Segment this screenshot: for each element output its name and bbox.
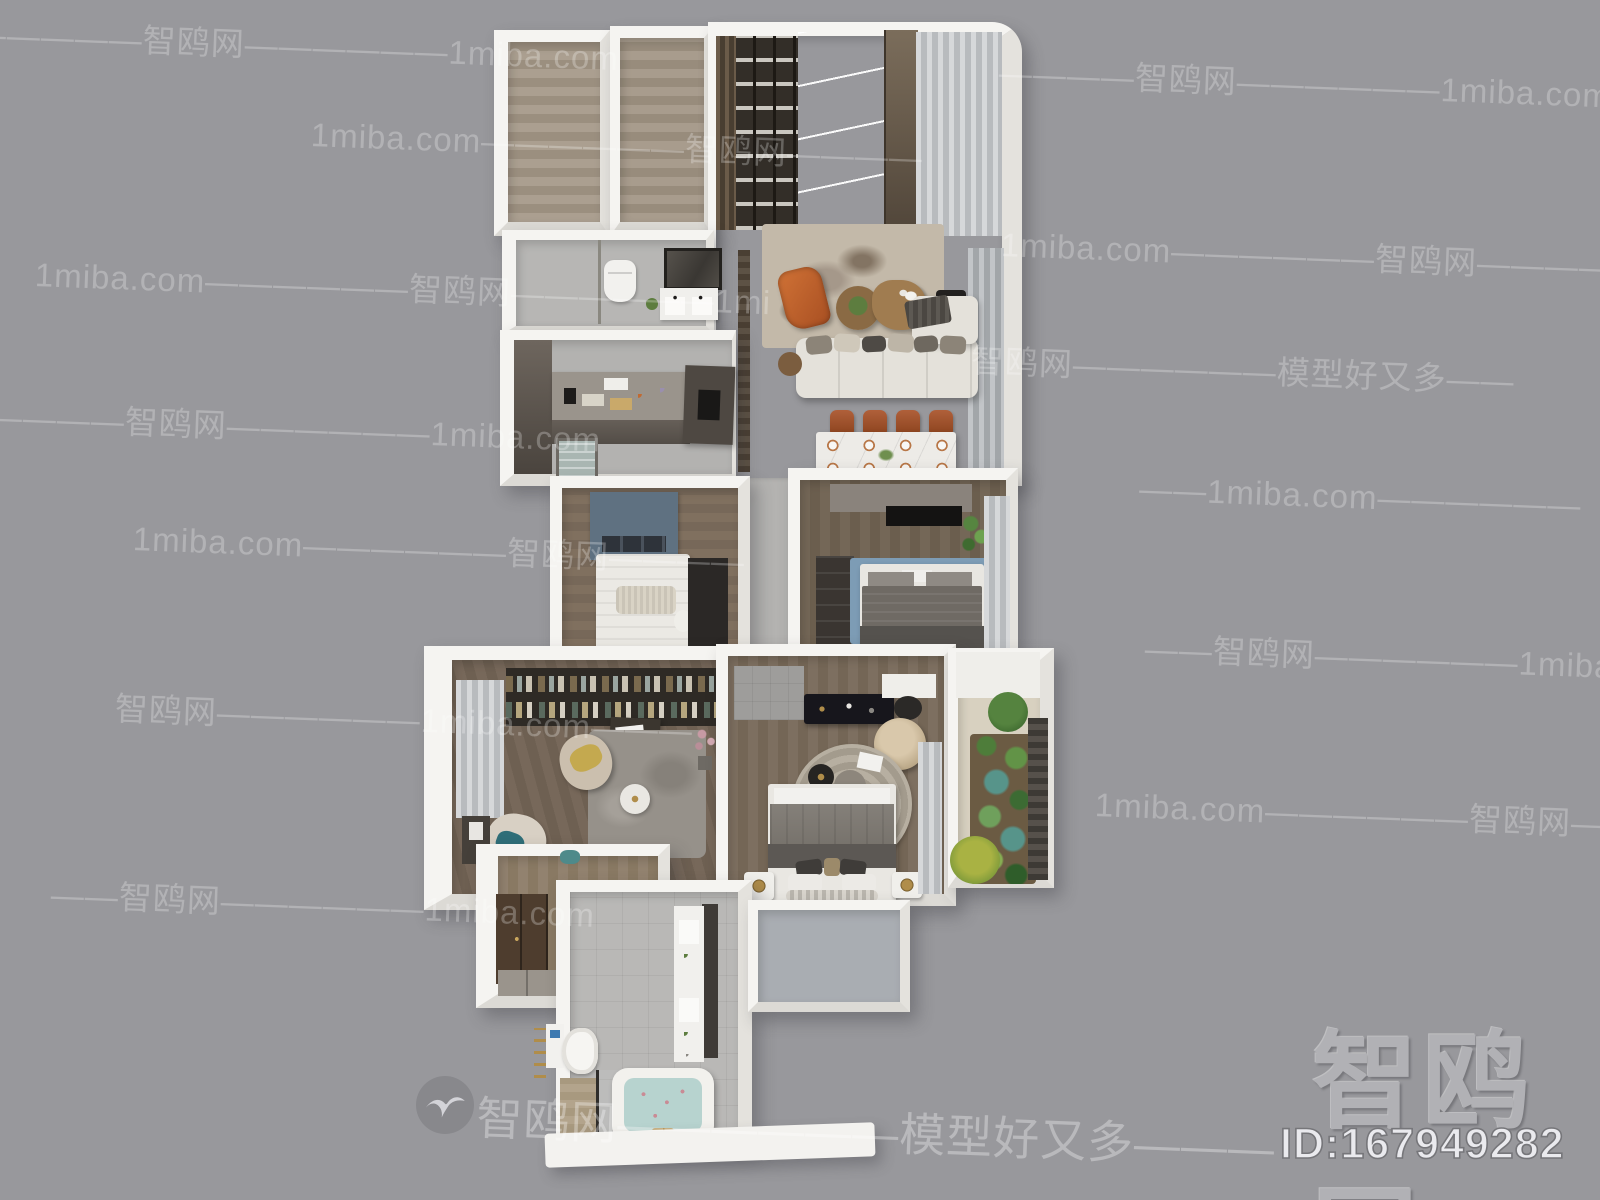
watermark-text: ————智鸥网——————1miba.com — [0, 390, 602, 461]
watermark-text: 智鸥网——————1miba.com——— — [114, 682, 694, 752]
watermark-text: ——智鸥网——————1miba.com — [50, 868, 596, 937]
watermark-text: ————智鸥网——————1miba.com— — [998, 46, 1600, 119]
model-id: ID:167949282 — [1280, 1120, 1565, 1169]
watermark-text: ——1miba.com—————— — [1139, 470, 1583, 525]
seagull-logo-icon — [416, 1076, 474, 1134]
watermark-text: 1miba.com——————智鸥网——— — [1094, 778, 1600, 848]
watermark-text: 1miba.com——————智鸥网—————— — [1000, 218, 1600, 292]
site-logo: 智鸥网 — [1312, 996, 1600, 1200]
watermark-text: 智鸥网——————模型好又多—— — [970, 334, 1515, 403]
watermark-text: 1miba.com——————智鸥网———— — [132, 512, 746, 583]
watermark-text: 1miba.com——————智鸥网———— — [310, 108, 924, 179]
watermark-text: ——————智鸥网——————1miba.com — [0, 6, 620, 80]
watermark-text: 1miba.com——————智鸥网——————1mi — [34, 248, 772, 324]
watermark-text: 智鸥网——————模型好又多——— — [475, 1082, 1276, 1179]
screenshot-canvas: ——————智鸥网——————1miba.com ————智鸥网——————1m… — [0, 0, 1600, 1200]
watermark-text: ——智鸥网——————1miba.com — [1144, 622, 1600, 691]
